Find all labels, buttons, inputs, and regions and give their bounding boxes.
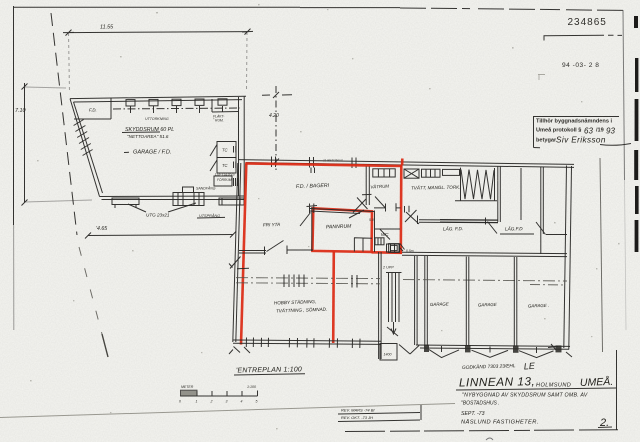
svg-text:SANDFÅNG: SANDFÅNG	[196, 186, 216, 191]
svg-text:1400: 1400	[384, 353, 392, 357]
svg-text:"NETTOAREA" 51.6: "NETTOAREA" 51.6	[127, 134, 169, 139]
svg-text:LINNEAN 13,: LINNEAN 13,	[459, 374, 536, 389]
svg-text:0: 0	[179, 400, 181, 404]
svg-text:Umeå protokoll §: Umeå protokoll §	[536, 127, 581, 134]
svg-text:'ENTREPLAN 1:100: 'ENTREPLAN 1:100	[236, 366, 302, 374]
svg-text:WC: WC	[381, 232, 389, 237]
svg-text:234865: 234865	[568, 17, 607, 28]
svg-text:UMEÅ.: UMEÅ.	[580, 375, 614, 389]
svg-text:PANNRUM: PANNRUM	[326, 224, 352, 231]
svg-text:REV. OKT. -73 JH: REV. OKT. -73 JH	[341, 415, 373, 420]
svg-text:Tillhör byggnadsnämndens i: Tillhör byggnadsnämndens i	[536, 119, 612, 125]
svg-text:94 -03- 2 8: 94 -03- 2 8	[562, 62, 599, 69]
svg-text:TVÄTT, MANGL. TORK.: TVÄTT, MANGL. TORK.	[411, 184, 461, 191]
svg-text:NÄSLUND FASTIGHETER.: NÄSLUND FASTIGHETER.	[461, 419, 539, 426]
svg-text:5.0: 5.0	[369, 218, 374, 222]
svg-text:4.20: 4.20	[269, 113, 279, 119]
svg-text:5: 5	[256, 400, 258, 404]
svg-text:11 BETONGV.: 11 BETONGV.	[323, 159, 344, 163]
svg-text:Siv Eriksson: Siv Eriksson	[556, 136, 606, 145]
svg-text:TC: TC	[222, 163, 229, 168]
svg-text:REV. MARS -74 BI: REV. MARS -74 BI	[341, 408, 375, 413]
svg-text:GARAGE .: GARAGE .	[528, 303, 549, 309]
svg-text:TC: TC	[222, 148, 229, 153]
svg-text:F.D. / BAGERI: F.D. / BAGERI	[296, 183, 330, 190]
svg-text:1:100: 1:100	[247, 385, 256, 389]
svg-text:63: 63	[584, 127, 593, 136]
svg-text:GARAGE: GARAGE	[478, 302, 497, 308]
svg-text:UTG 23x21: UTG 23x21	[146, 213, 170, 218]
svg-text:"BOSTADSHUS .: "BOSTADSHUS .	[461, 401, 500, 407]
svg-text:1: 1	[196, 400, 198, 404]
svg-text:F.D.: F.D.	[89, 108, 97, 113]
svg-text:betygar: betygar	[536, 138, 557, 144]
svg-text:93: 93	[606, 127, 615, 136]
svg-text:FÖRRUM: FÖRRUM	[217, 178, 232, 182]
svg-text:LÄG. F.D.: LÄG. F.D.	[443, 225, 463, 231]
svg-text:SEPT. -73: SEPT. -73	[461, 411, 485, 417]
svg-text:FRI YTA: FRI YTA	[263, 222, 280, 228]
svg-text:HOLMSUND: HOLMSUND	[536, 383, 571, 389]
svg-text:GARAGE / F.D.: GARAGE / F.D.	[133, 150, 171, 156]
svg-text:RUM.: RUM.	[215, 119, 224, 123]
svg-text:11.55: 11.55	[100, 25, 114, 31]
svg-text:LÄG.F.D: LÄG.F.D	[505, 225, 523, 231]
svg-text:2 UPP: 2 UPP	[382, 266, 394, 270]
svg-text:/19: /19	[596, 128, 604, 134]
svg-text:2: 2	[210, 400, 213, 404]
svg-text:METER: METER	[181, 385, 194, 389]
svg-text:0,5m: 0,5m	[406, 249, 414, 253]
svg-text:"NYBYGGNAD AV SKYDDSRUM SAM: "NYBYGGNAD AV SKYDDSRUM SAMT OMB. AV	[462, 393, 588, 399]
svg-text:4: 4	[241, 400, 243, 404]
svg-text:3: 3	[226, 400, 228, 404]
svg-text:'4.65: '4.65	[96, 226, 107, 232]
svg-text:GARAGE: GARAGE	[430, 301, 449, 307]
svg-text:UTTORKNING: UTTORKNING	[145, 117, 169, 121]
svg-text:7.10: 7.10	[15, 108, 26, 114]
svg-text:VÅTRUM: VÅTRUM	[370, 184, 389, 190]
svg-text:LE: LE	[523, 361, 536, 372]
svg-text:LUFTSLUSS: LUFTSLUSS	[215, 173, 235, 177]
